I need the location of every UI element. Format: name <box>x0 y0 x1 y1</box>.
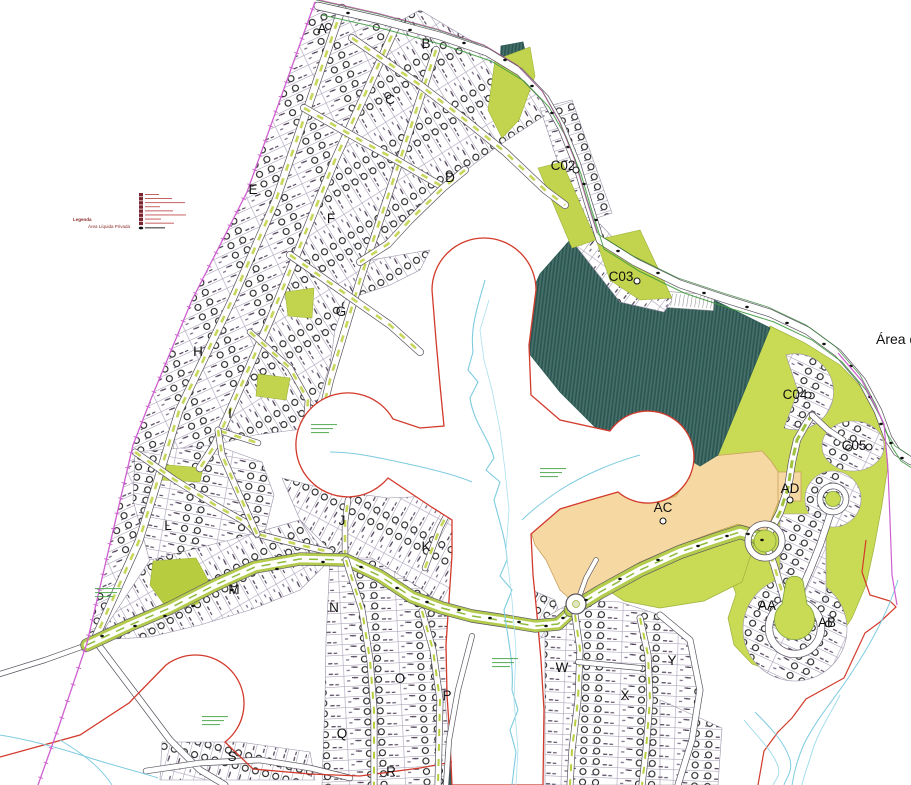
svg-text:X: X <box>620 688 629 703</box>
svg-text:H: H <box>193 344 203 359</box>
svg-text:C04: C04 <box>783 387 808 402</box>
svg-text:G: G <box>336 304 347 319</box>
svg-text:M: M <box>228 582 239 597</box>
svg-text:AC: AC <box>654 500 673 515</box>
svg-text:Área da: Área da <box>876 331 911 347</box>
svg-text:S: S <box>227 749 236 764</box>
svg-text:Y: Y <box>667 653 676 668</box>
svg-text:C03: C03 <box>609 269 634 284</box>
svg-text:Área Líquida Privada: Área Líquida Privada <box>88 223 131 229</box>
svg-text:A: A <box>317 21 326 36</box>
svg-text:C02: C02 <box>551 158 576 173</box>
svg-text:N: N <box>329 600 339 615</box>
svg-text:C: C <box>385 92 395 107</box>
svg-text:R: R <box>386 764 396 779</box>
svg-text:F: F <box>327 211 335 226</box>
svg-text:E: E <box>248 182 257 197</box>
svg-text:O: O <box>395 671 406 686</box>
svg-text:P: P <box>442 688 451 703</box>
svg-text:L: L <box>164 518 172 533</box>
svg-text:Q: Q <box>337 726 348 741</box>
svg-text:AD: AD <box>781 481 800 496</box>
svg-text:D: D <box>445 170 455 185</box>
svg-text:C05: C05 <box>842 438 867 453</box>
svg-text:J: J <box>339 513 346 528</box>
svg-text:Legenda: Legenda <box>73 217 92 222</box>
svg-text:K: K <box>421 539 430 554</box>
svg-text:AB: AB <box>818 615 836 630</box>
svg-text:I: I <box>228 406 232 421</box>
svg-text:W: W <box>556 660 569 675</box>
svg-text:AA: AA <box>758 598 776 613</box>
svg-text:B: B <box>421 36 430 51</box>
